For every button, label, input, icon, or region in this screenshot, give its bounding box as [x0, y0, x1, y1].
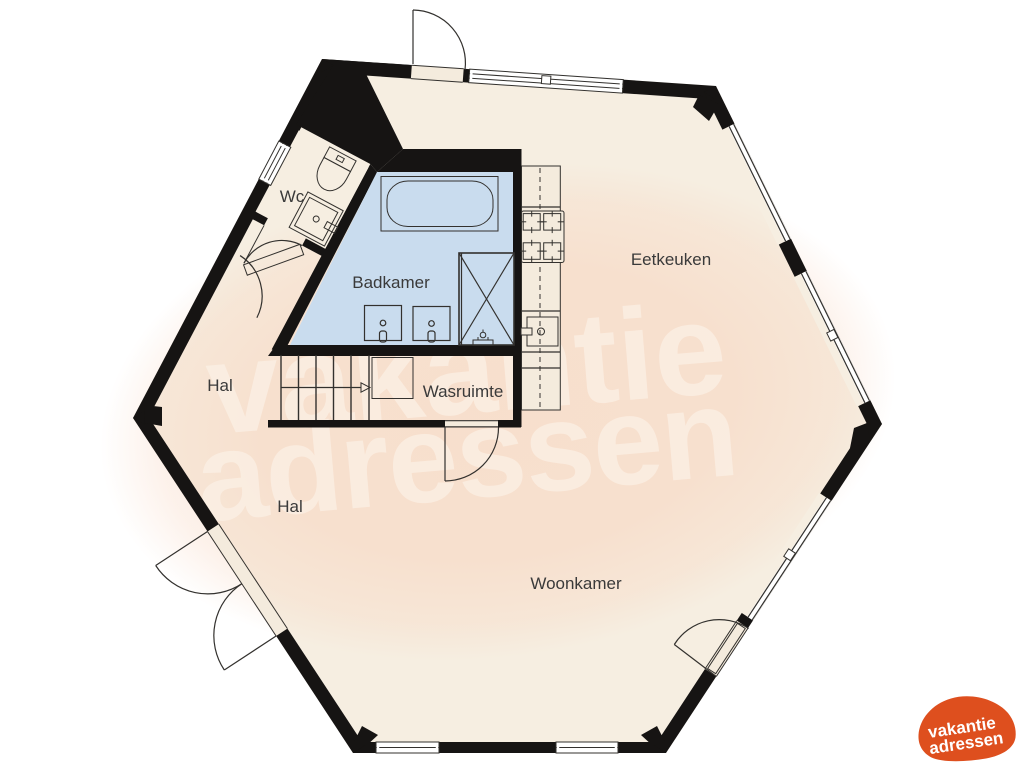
svg-text:Hal: Hal: [277, 497, 303, 516]
svg-text:Wc: Wc: [280, 187, 305, 206]
svg-text:Badkamer: Badkamer: [352, 273, 430, 292]
svg-text:Wasruimte: Wasruimte: [423, 382, 504, 401]
svg-text:Woonkamer: Woonkamer: [530, 574, 622, 593]
svg-text:Eetkeuken: Eetkeuken: [631, 250, 711, 269]
svg-text:Hal: Hal: [207, 376, 233, 395]
